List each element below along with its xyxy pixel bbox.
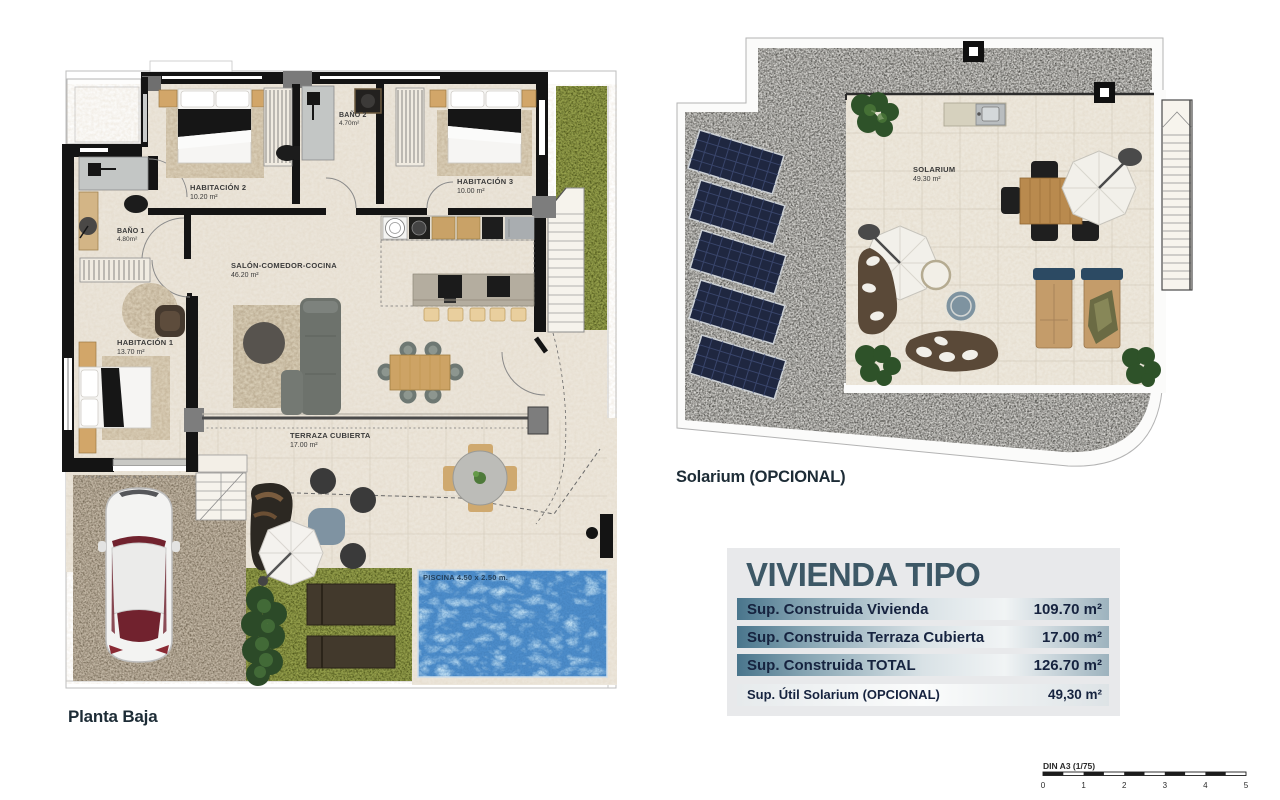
svg-text:4.80m²: 4.80m²	[117, 236, 138, 243]
svg-text:Sup. Construida Terraza Cubier: Sup. Construida Terraza Cubierta	[747, 629, 985, 646]
svg-text:HABITACIÓN 2: HABITACIÓN 2	[190, 183, 246, 192]
svg-text:TERRAZA CUBIERTA: TERRAZA CUBIERTA	[290, 431, 371, 440]
svg-text:BAÑO 1: BAÑO 1	[117, 226, 145, 235]
svg-text:Solarium (OPCIONAL): Solarium (OPCIONAL)	[676, 468, 845, 486]
svg-text:VIVIENDA TIPO: VIVIENDA TIPO	[746, 556, 980, 593]
svg-text:1: 1	[1081, 781, 1086, 790]
svg-text:13.70 m²: 13.70 m²	[117, 349, 145, 356]
svg-text:HABITACIÓN 1: HABITACIÓN 1	[117, 338, 173, 347]
svg-text:Planta Baja: Planta Baja	[68, 707, 158, 726]
svg-text:109.70 m²: 109.70 m²	[1034, 601, 1102, 618]
svg-text:3: 3	[1163, 781, 1168, 790]
svg-text:2: 2	[1122, 781, 1127, 790]
svg-text:DIN A3 (1/75): DIN A3 (1/75)	[1043, 761, 1095, 771]
svg-text:HABITACIÓN 3: HABITACIÓN 3	[457, 177, 513, 186]
svg-text:5: 5	[1244, 781, 1249, 790]
svg-text:10.00 m²: 10.00 m²	[457, 188, 485, 195]
svg-text:49,30 m²: 49,30 m²	[1048, 687, 1103, 702]
svg-text:SOLARIUM: SOLARIUM	[913, 165, 955, 174]
svg-text:49.30 m²: 49.30 m²	[913, 176, 941, 183]
svg-text:17.00 m²: 17.00 m²	[1042, 629, 1102, 646]
svg-text:BAÑO 2: BAÑO 2	[339, 110, 367, 119]
svg-text:126.70 m²: 126.70 m²	[1034, 657, 1102, 674]
svg-text:Sup. Construida TOTAL: Sup. Construida TOTAL	[747, 657, 916, 674]
svg-text:0: 0	[1041, 781, 1046, 790]
svg-text:4.70m²: 4.70m²	[339, 120, 360, 127]
svg-text:46.20 m²: 46.20 m²	[231, 272, 259, 279]
svg-text:Sup. Útil Solarium (OPCIONAL): Sup. Útil Solarium (OPCIONAL)	[747, 687, 940, 702]
svg-text:10.20 m²: 10.20 m²	[190, 194, 218, 201]
svg-text:SALÓN-COMEDOR-COCINA: SALÓN-COMEDOR-COCINA	[231, 261, 337, 270]
svg-text:17.00 m²: 17.00 m²	[290, 442, 318, 449]
svg-text:PISCINA 4.50 x 2.50 m.: PISCINA 4.50 x 2.50 m.	[423, 573, 508, 582]
svg-text:4: 4	[1203, 781, 1208, 790]
svg-text:Sup. Construida Vivienda: Sup. Construida Vivienda	[747, 601, 929, 618]
